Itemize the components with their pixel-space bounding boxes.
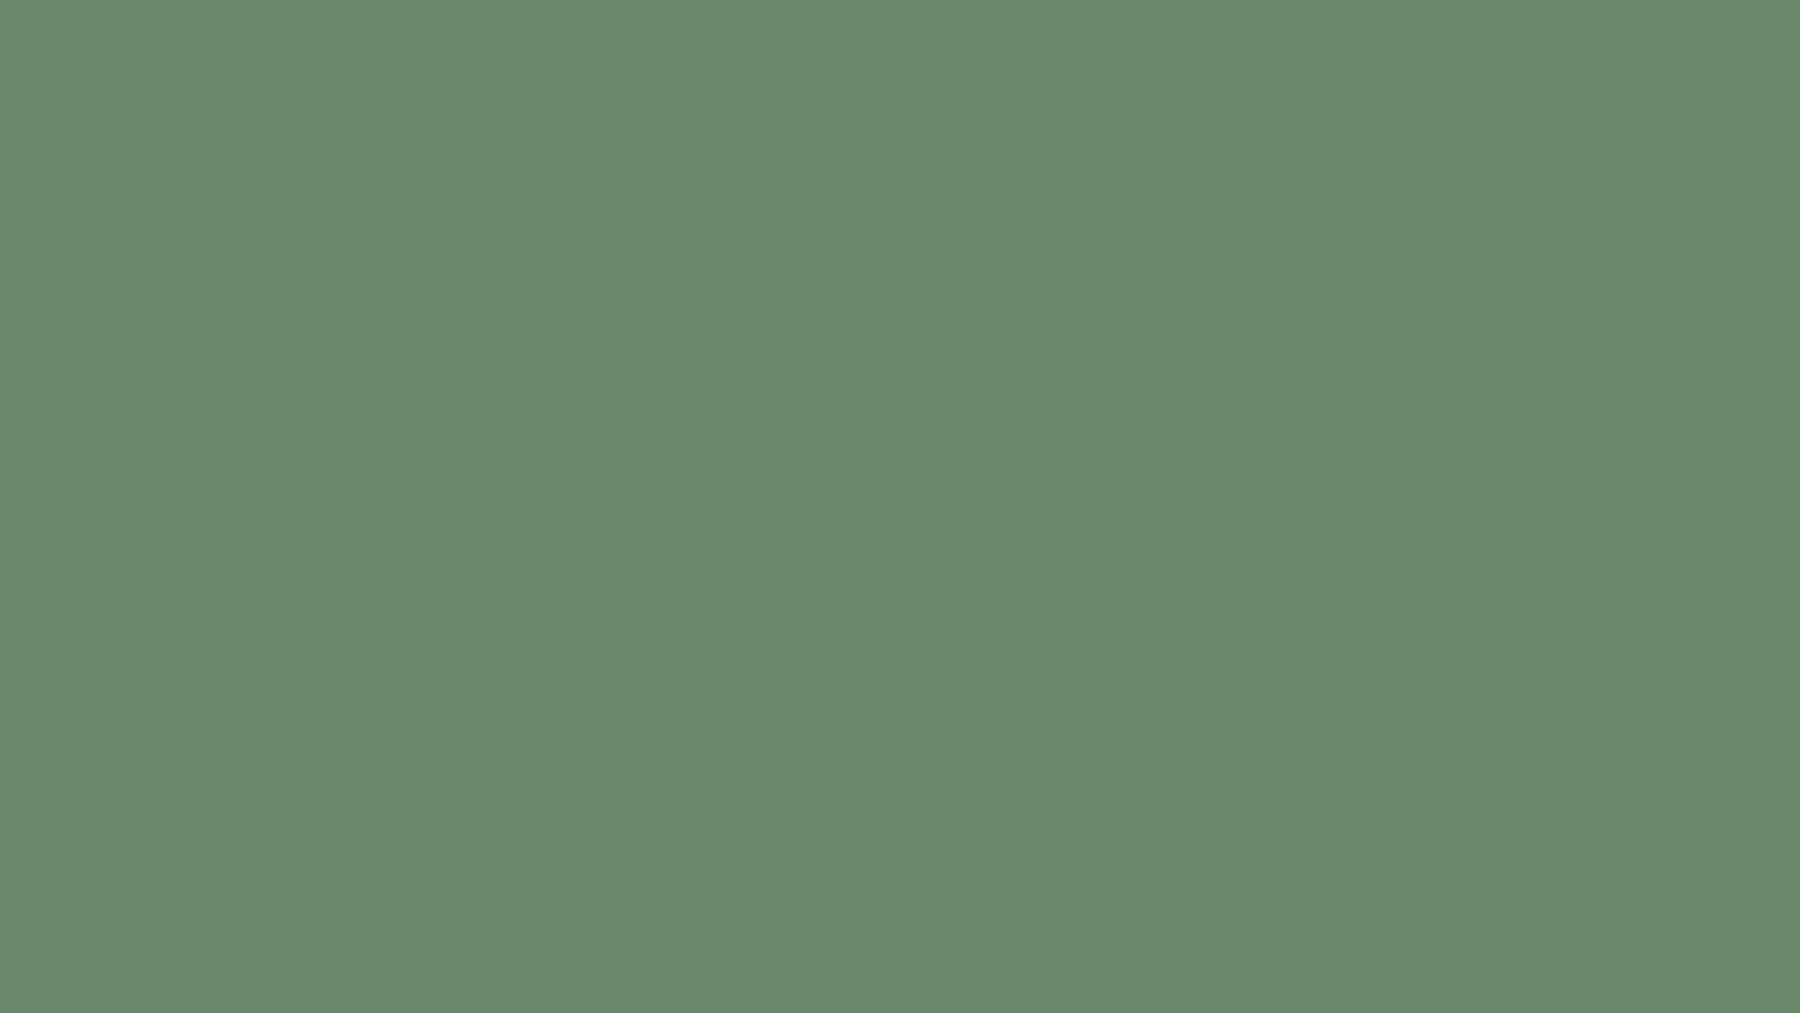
masterplan-aerial-map <box>0 0 1800 1013</box>
masterplan-map-image <box>0 0 1800 1013</box>
